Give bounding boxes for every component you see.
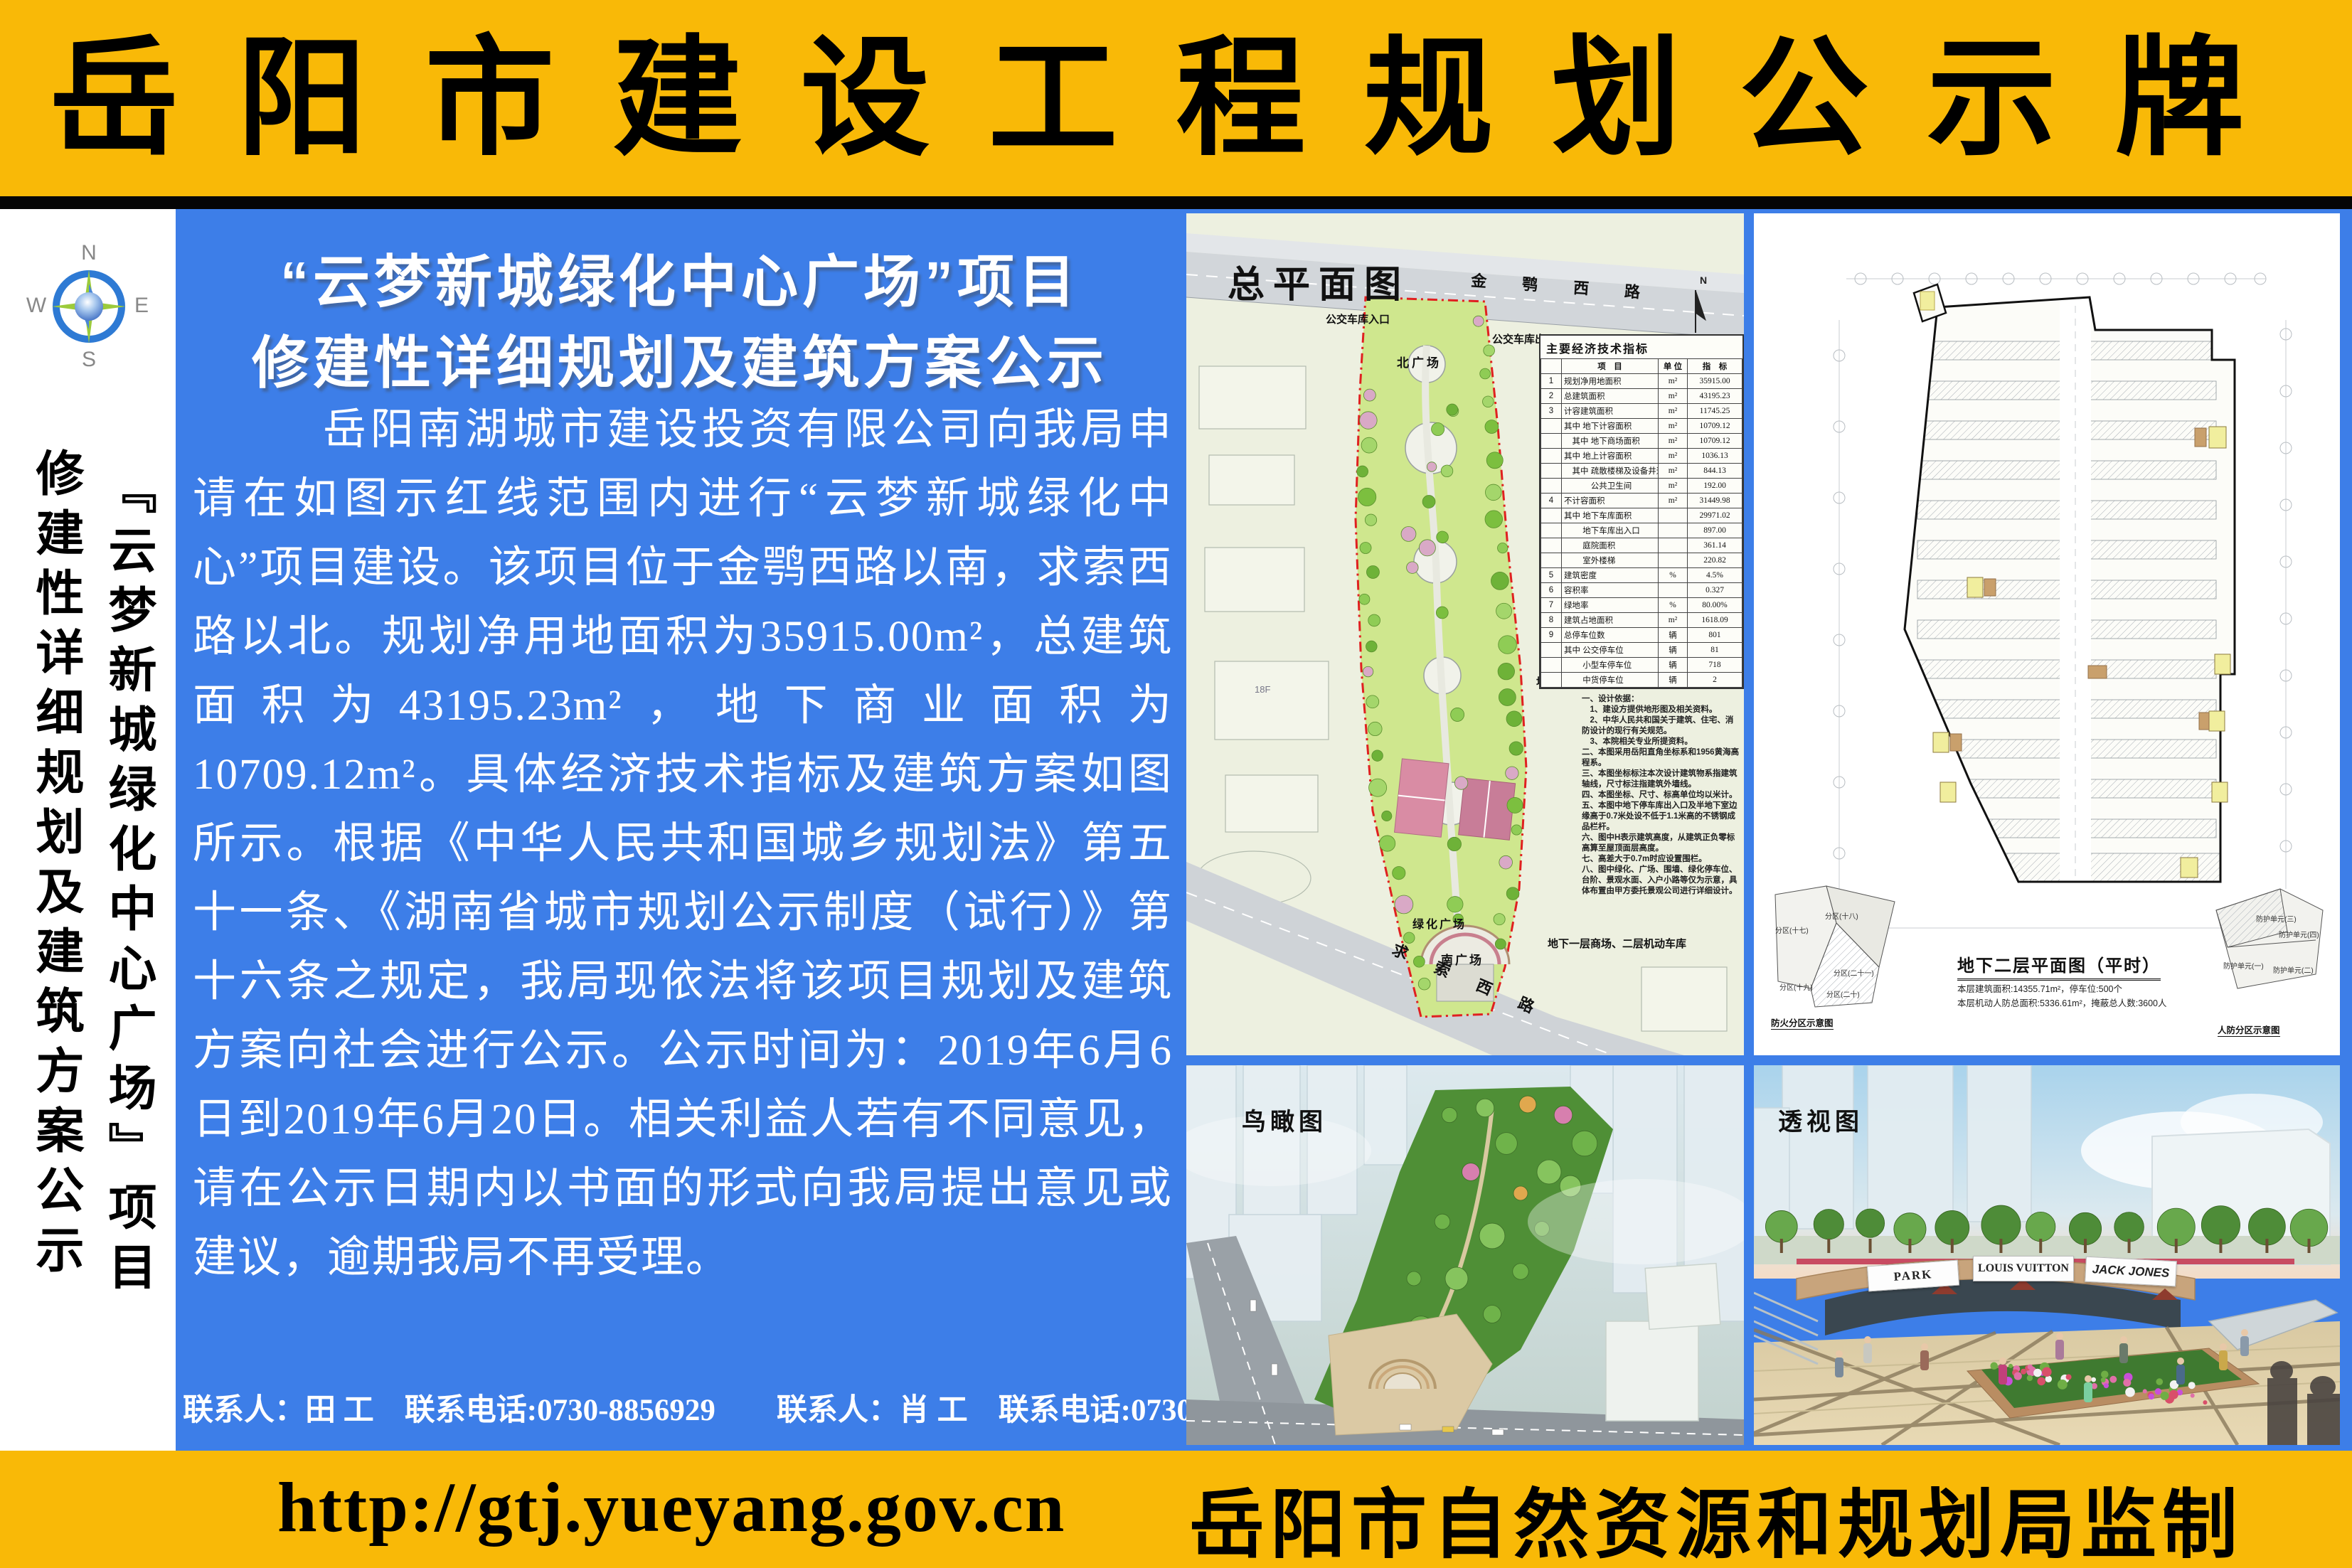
site-plan-north-plaza-label: 北广场 (1397, 353, 1442, 370)
aerial-view-label: 鸟瞰图 (1242, 1102, 1327, 1137)
sidebar-vertical-title-project: 『云梦新城绿化中心广场』项目 (104, 465, 152, 1301)
perspective-sign-louis-vuitton: LOUIS VUITTON (1973, 1256, 2074, 1281)
svg-text:S: S (82, 348, 96, 369)
floor-plan-mini-right-caption: 人防分区示意图 (2218, 1023, 2280, 1037)
compass-icon: N W E S (25, 241, 153, 369)
aerial-view-panel: 鸟瞰图 (1186, 1065, 1744, 1445)
perspective-view-label: 透视图 (1778, 1102, 1863, 1137)
site-plan-north-mark: N (1700, 274, 1707, 286)
perspective-view-panel: 透视图 PARK PLACE LOUIS VUITTON JACK JONES (1754, 1065, 2340, 1445)
page-title: 岳阳市建设工程规划公示牌 (0, 0, 2352, 196)
floor-plan-fire-zone-labels: 分区(十七)分区(十八)分区(二十一)分区(十九)分区(二十) (1765, 882, 1907, 1017)
site-plan-notes: 一、设计依据： 1、建设方提供地形图及相关资料。 2、中华人民共和国关于建筑、住… (1582, 694, 1741, 897)
floor-plan-panel: 地下二层平面图（平时） 本层建筑面积:14355.71m²，停车位:500个 本… (1754, 213, 2340, 1055)
indicators-table-title: 主要经济技术指标 (1540, 336, 1742, 358)
notice-contacts: 联系人：田 工 联系电话:0730-8856929 联系人：肖 工 联系电话:0… (183, 1385, 1309, 1429)
svg-text:W: W (26, 294, 47, 317)
perspective-sign-jack-jones: JACK JONES (2085, 1257, 2177, 1287)
site-plan-bldg-18f-label: 18F (1255, 684, 1270, 695)
notice-body: 岳阳南湖城市建设投资有限公司向我局申请在如图示红线范围内进行“云梦新城绿化中心”… (193, 395, 1173, 1292)
indicators-table: 项 目 单 位 指 标 1规划净用地面积m²35915.002总建筑面积m²43… (1540, 358, 1742, 688)
floor-plan-title: 地下二层平面图（平时） (1957, 951, 2161, 981)
footer-url: http://gtj.yueyang.gov.cn (277, 1466, 1065, 1548)
site-plan-bus-in-label: 公交车库入口 (1326, 311, 1390, 326)
svg-text:N: N (81, 241, 97, 265)
sidebar-vertical-title-notice: 修建性详细规划及建筑方案公示 (31, 448, 80, 1284)
notice-board: 岳阳市建设工程规划公示牌 N W E S 『云梦新城绿化中心广场』项目 修建性 (0, 0, 2352, 1568)
floor-plan-civil-unit-labels: 防护单元(三)防护单元(四)防护单元(一)防护单元(二) (2195, 882, 2337, 1017)
floor-plan-mini-left-caption: 防火分区示意图 (1771, 1015, 1834, 1030)
sidebar: N W E S 『云梦新城绿化中心广场』项目 修建性详细规划及建筑方案公示 (0, 209, 176, 1451)
notice-title-line1: “云梦新城绿化中心广场”项目 (176, 236, 1184, 319)
site-plan-green-plaza-label: 绿化广场 (1412, 914, 1467, 932)
notice-title-line2: 修建性详细规划及建筑方案公示 (176, 317, 1184, 400)
header-band: 岳阳市建设工程规划公示牌 (0, 0, 2352, 196)
indicators-table-box: 主要经济技术指标 项 目 单 位 指 标 1规划净用地面积m²35915.002… (1539, 334, 1744, 689)
svg-text:E: E (134, 294, 149, 317)
indicators-table-rows: 1规划净用地面积m²35915.002总建筑面积m²43195.233计容建筑面… (1541, 374, 1742, 688)
site-plan-title: 总平面图 (1228, 255, 1410, 308)
notice-panel: “云梦新城绿化中心广场”项目 修建性详细规划及建筑方案公示 岳阳南湖城市建设投资… (176, 209, 1184, 1451)
floor-plan-stat-1: 本层建筑面积:14355.71m²，停车位:500个 (1957, 983, 2122, 996)
site-plan-ann-mall-garage: 地下一层商场、二层机动车库 (1548, 936, 1686, 951)
floor-plan-stat-2: 本层机动人防总面积:5336.61m²，掩蔽总人数:3600人 (1957, 997, 2167, 1010)
footer-agency: 岳阳市自然资源和规划局监制 (1189, 1463, 2243, 1568)
site-plan-panel: 总平面图 金 鹗 西 路 公交车库入口 公交车库出口 北广场 绿化广场 南广场 … (1186, 213, 1744, 1055)
footer-band: http://gtj.yueyang.gov.cn 岳阳市自然资源和规划局监制 (0, 1451, 2352, 1568)
header-divider (0, 196, 2352, 209)
